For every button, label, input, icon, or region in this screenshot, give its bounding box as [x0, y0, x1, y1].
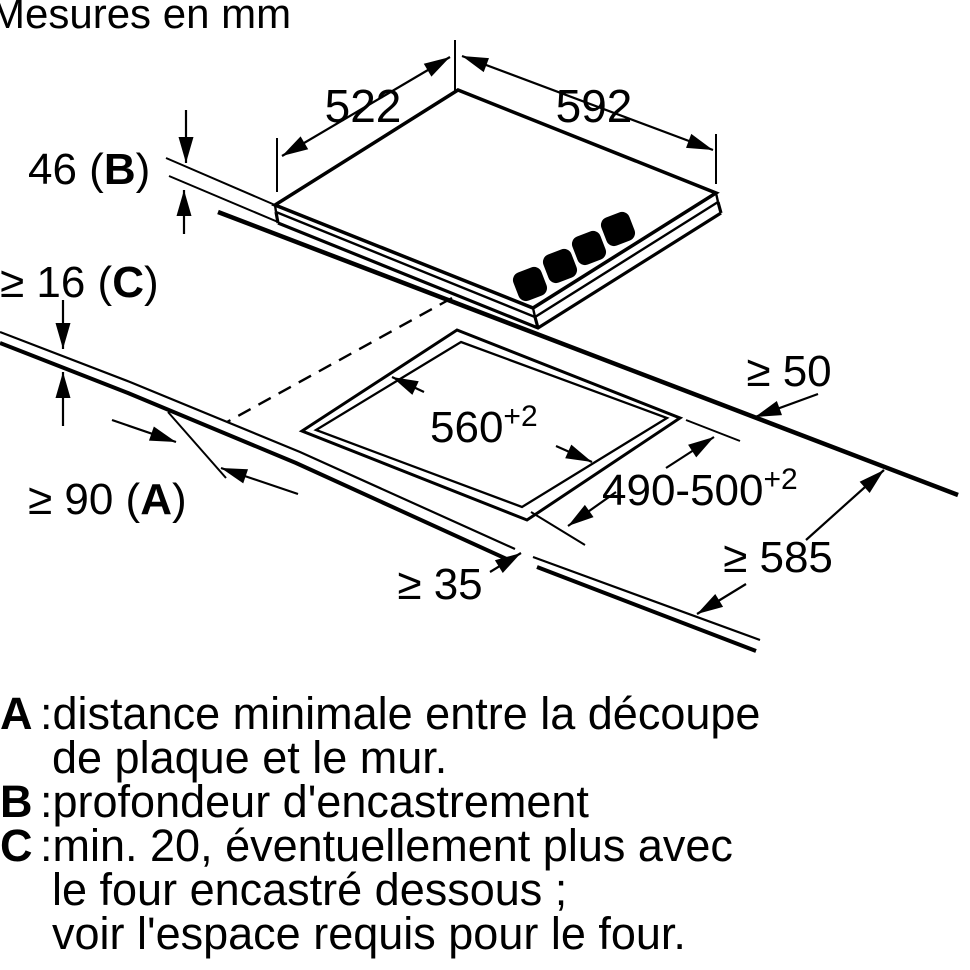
dim-arrow-90-left — [112, 420, 176, 442]
cutout-depth-ext-front — [531, 512, 585, 545]
legend-text-c-line1: :min. 20, éventuellement plus avec — [40, 824, 733, 868]
legend-item-c: C:min. 20, éventuellement plus avec — [0, 824, 970, 868]
legend-item-c-cont2: voir l'espace requis pour le four. — [0, 912, 970, 956]
dim-arrow-585-front — [697, 584, 746, 614]
legend-text-c-line3: voir l'espace requis pour le four. — [0, 912, 686, 956]
dim-label-50: ≥ 50 — [746, 347, 831, 396]
legend-letter-b: B — [0, 780, 40, 824]
legend-item-a-cont: de plaque et le mur. — [0, 736, 970, 780]
legend-text-a-line2: de plaque et le mur. — [0, 736, 447, 780]
legend-text-b-line1: :profondeur d'encastrement — [40, 780, 589, 824]
installation-diagram: Mesures en mm — [0, 0, 970, 690]
dim-label-90A: ≥ 90 (A) — [28, 475, 187, 524]
dim-arrow-490-top — [666, 437, 714, 468]
dim-label-16C: ≥ 16 (C) — [0, 258, 159, 307]
installation-diagram-page: Mesures en mm — [0, 0, 970, 970]
dim-label-35: ≥ 35 — [397, 560, 482, 609]
projection-dashed-line — [227, 298, 452, 422]
dim-arrow-90-right — [221, 468, 298, 494]
dim-arrow-560-left — [392, 377, 424, 392]
legend-item-b: B:profondeur d'encastrement — [0, 780, 970, 824]
legend-item-c-cont1: le four encastré dessous ; — [0, 868, 970, 912]
dim-arrow-585-back — [806, 470, 884, 540]
dim-label-522: 522 — [325, 80, 402, 132]
legend: A:distance minimale entre la découpe de … — [0, 692, 970, 956]
page-title: Mesures en mm — [0, 0, 291, 37]
dim-label-490-500: 490-500+2 — [602, 463, 798, 515]
dim-arrow-35 — [490, 553, 521, 572]
dim-label-46B: 46 (B) — [28, 145, 150, 194]
dim-arrow-50 — [755, 394, 818, 417]
dim-arrow-560-right — [556, 446, 592, 462]
legend-text-c-line2: le four encastré dessous ; — [0, 868, 567, 912]
dim-label-560: 560+2 — [430, 400, 538, 452]
legend-item-a: A:distance minimale entre la découpe — [0, 692, 970, 736]
legend-letter-a: A — [0, 692, 40, 736]
dim-label-585: ≥ 585 — [723, 533, 833, 582]
legend-letter-c: C — [0, 824, 40, 868]
dim-label-592: 592 — [556, 80, 633, 132]
legend-text-a-line1: :distance minimale entre la découpe — [40, 692, 760, 736]
